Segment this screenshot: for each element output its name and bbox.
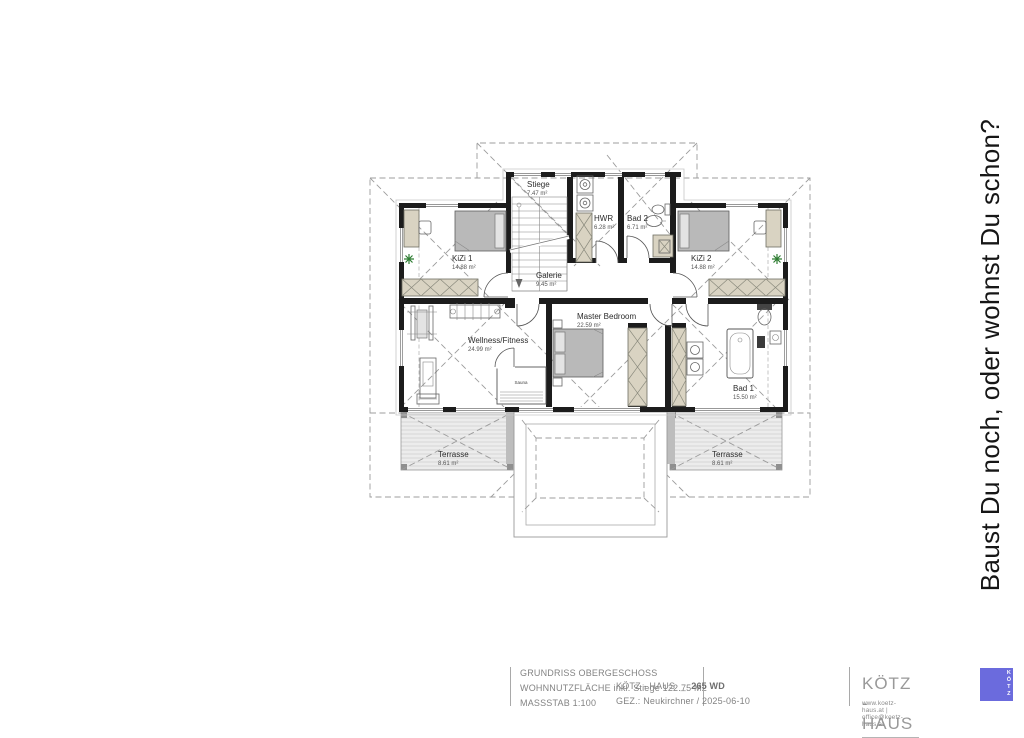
window	[514, 172, 541, 177]
room-label: Terrasse	[712, 450, 743, 459]
room-area: 6.71 m²	[627, 225, 647, 231]
door-swing	[627, 236, 649, 258]
room-area: 22.59 m²	[577, 323, 601, 329]
room-area: 9.45 m²	[536, 282, 556, 288]
title-block-divider	[510, 667, 511, 706]
window	[399, 330, 404, 366]
window	[726, 203, 758, 208]
room-area: 6.28 m²	[594, 225, 614, 231]
plant-icon	[772, 254, 782, 264]
cabinet-symbol	[576, 213, 592, 262]
wardrobe-symbol	[402, 279, 478, 296]
room-label: KiZi 2	[691, 254, 712, 263]
room-area: 8.61 m²	[712, 461, 732, 467]
double-bed-symbol	[553, 320, 603, 386]
door-swing	[495, 348, 514, 367]
room-label: Sauna	[514, 380, 528, 385]
brand-logo-letters: KÖTZ	[1007, 670, 1011, 698]
terrace-door	[519, 407, 553, 412]
wardrobe-symbol	[672, 328, 686, 406]
door-swing	[673, 273, 697, 297]
dryer-icon	[577, 195, 593, 211]
room-area: 14.88 m²	[452, 265, 476, 271]
window	[645, 172, 665, 177]
double-sink-icon	[687, 342, 703, 375]
room-label: Wellness/Fitness	[468, 336, 528, 345]
furniture	[402, 176, 785, 406]
room-area: 8.61 m²	[438, 461, 458, 467]
window	[399, 228, 404, 262]
fitness-machine-symbol	[417, 358, 439, 404]
bed-symbol	[455, 211, 506, 251]
window	[555, 172, 571, 177]
door-swing	[650, 304, 672, 326]
drawn-by: GEZ.: Neukirchner / 2025-06-10	[616, 694, 750, 709]
room-area: 7.47 m²	[527, 191, 547, 197]
project-code: 265 WD	[691, 681, 725, 691]
floor-plan: Stiege 7.47 m² HWR 6.28 m² Bad 2 6.71 m²…	[0, 0, 1024, 724]
door-swing	[517, 304, 539, 326]
room-label: Bad 1	[733, 384, 754, 393]
window	[426, 203, 458, 208]
project-separator: _	[681, 681, 686, 691]
washer-icon	[577, 176, 593, 193]
toilet-icon	[757, 304, 772, 325]
door-swing	[686, 304, 708, 326]
window	[783, 330, 788, 366]
room-area: 15.50 m²	[733, 395, 757, 401]
room-label: Galerie	[536, 271, 562, 280]
plant-icon	[404, 254, 414, 264]
door-swing	[484, 273, 508, 297]
radiator-symbol	[757, 331, 781, 348]
title-block-divider	[849, 667, 850, 706]
window	[605, 172, 622, 177]
project-info: KÖTZ - HAUS _ 265 WD GEZ.: Neukirchner /…	[616, 679, 750, 709]
gym-bench-symbol	[407, 306, 437, 340]
desk-symbol	[754, 210, 781, 247]
terrace-door	[456, 407, 505, 412]
room-label: HWR	[594, 214, 613, 223]
brand-logo-mark: KÖTZ	[980, 668, 1013, 701]
room-label: Terrasse	[438, 450, 469, 459]
drawing-sheet: Stiege 7.47 m² HWR 6.28 m² Bad 2 6.71 m²…	[0, 0, 1024, 724]
window	[695, 407, 760, 412]
window	[783, 228, 788, 262]
shower-icon	[653, 235, 673, 257]
room-area: 14.88 m²	[691, 265, 715, 271]
project-name: KÖTZ - HAUS	[616, 681, 675, 691]
toilet-icon	[652, 204, 670, 215]
project-line: KÖTZ - HAUS _ 265 WD	[616, 679, 750, 694]
room-label: Master Bedroom	[577, 312, 636, 321]
balcony-below	[506, 412, 675, 537]
wardrobe-symbol	[709, 279, 785, 296]
room-label: Stiege	[527, 180, 550, 189]
room-label: Bad 2	[627, 214, 648, 223]
wardrobe-symbol	[628, 328, 647, 406]
slogan-text: Baust Du noch, oder wohnst Du schon?	[975, 119, 1005, 592]
room-label: KiZi 1	[452, 254, 473, 263]
bathtub-icon	[727, 329, 753, 378]
desk-symbol	[404, 210, 431, 247]
bed-symbol	[678, 211, 729, 251]
room-area: 24.99 m²	[468, 347, 492, 353]
barbell-rack-symbol	[450, 303, 500, 320]
window	[408, 407, 443, 412]
terrace-door	[574, 407, 640, 412]
